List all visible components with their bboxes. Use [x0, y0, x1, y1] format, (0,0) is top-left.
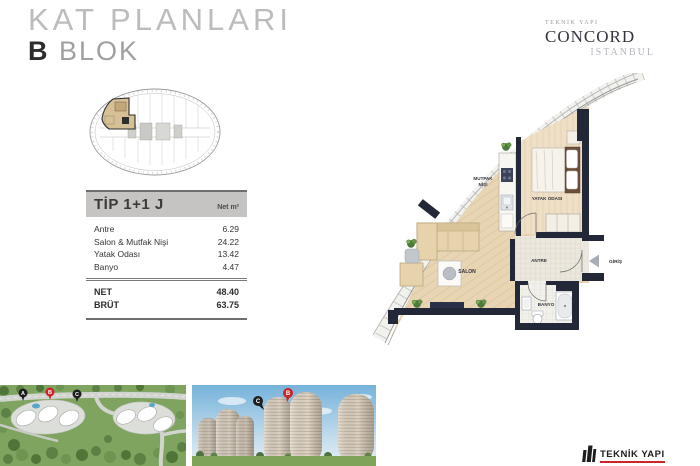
brand-project: CONCORD: [545, 27, 655, 47]
label-salon: SALON: [458, 269, 476, 275]
shower: [556, 283, 574, 320]
kitchen-counter: [499, 153, 516, 231]
tower-marker-c-label: C: [256, 399, 261, 405]
unit-type-title: TİP 1+1 J: [94, 196, 164, 213]
wardrobe: [546, 214, 580, 232]
toilet: [532, 311, 543, 324]
table-row: Salon & Mutfak Nişi 24.22: [94, 236, 239, 249]
label-giris: GİRİŞ: [609, 258, 623, 265]
floor-key-plan: [88, 86, 222, 178]
apartment-floor-plan: MUTFAK NİŞİ YATAK ODASI SALON ANTRE BANY…: [360, 73, 690, 383]
label-antre: ANTRE: [531, 258, 547, 263]
tower-marker-b-label: B: [286, 391, 291, 397]
spec-table-header: TİP 1+1 J Net m²: [86, 192, 247, 217]
unit-spec-table: TİP 1+1 J Net m² Antre 6.29 Salon & Mutf…: [86, 190, 247, 320]
brand-city: ISTANBUL: [545, 47, 655, 58]
teknik-yapi-logo: TEKNİK YAPI: [582, 444, 665, 463]
map-marker-b-label: B: [48, 390, 52, 396]
label-mutfak-2: NİŞİ: [479, 181, 488, 187]
towers-render-image: C B: [192, 385, 376, 466]
row-label: Banyo: [94, 261, 118, 274]
label-banyo: BANYO: [538, 302, 555, 307]
row-label: Yatak Odası: [94, 248, 140, 261]
row-value: 24.22: [218, 236, 239, 249]
row-value: 13.42: [218, 248, 239, 261]
row-value: 4.47: [222, 261, 239, 274]
table-row: Yatak Odası 13.42: [94, 248, 239, 261]
total-label: BRÜT: [94, 299, 119, 312]
concord-logo: TEKNİK YAPI CONCORD ISTANBUL: [545, 20, 655, 58]
row-value: 6.29: [222, 223, 239, 236]
total-label: NET: [94, 286, 112, 299]
block-word: BLOK: [59, 36, 139, 66]
tv-panel: [418, 199, 440, 219]
total-value: 48.40: [216, 286, 239, 299]
total-value: 63.75: [216, 299, 239, 312]
row-label: Antre: [94, 223, 114, 236]
site-map-image: A B C: [0, 385, 186, 466]
label-mutfak: MUTFAK: [473, 176, 493, 181]
page-title-text: KAT PLANLARI: [28, 4, 292, 35]
bathroom-sink: [522, 297, 531, 310]
tv-unit: [430, 302, 464, 308]
entry-arrow-icon: [589, 255, 599, 268]
table-total-row: BRÜT 63.75: [94, 299, 239, 312]
table-row: Antre 6.29: [94, 223, 239, 236]
page-title: KAT PLANLARI B BLOK: [28, 4, 292, 65]
map-marker-c-label: C: [75, 392, 79, 398]
table-total-row: NET 48.40: [94, 286, 239, 299]
brand-company: TEKNİK YAPI: [545, 20, 655, 26]
lawn: [192, 456, 376, 466]
label-yatak-odasi: YATAK ODASI: [532, 196, 563, 201]
table-row: Banyo 4.47: [94, 261, 239, 274]
teknik-yapi-text: TEKNİK YAPI: [600, 450, 665, 463]
block-letter: B: [28, 36, 50, 66]
row-label: Salon & Mutfak Nişi: [94, 236, 168, 249]
map-marker-a-label: A: [21, 391, 25, 397]
unit-header: Net m²: [217, 204, 239, 213]
stove: [501, 168, 513, 182]
teknik-yapi-icon: [582, 444, 597, 463]
